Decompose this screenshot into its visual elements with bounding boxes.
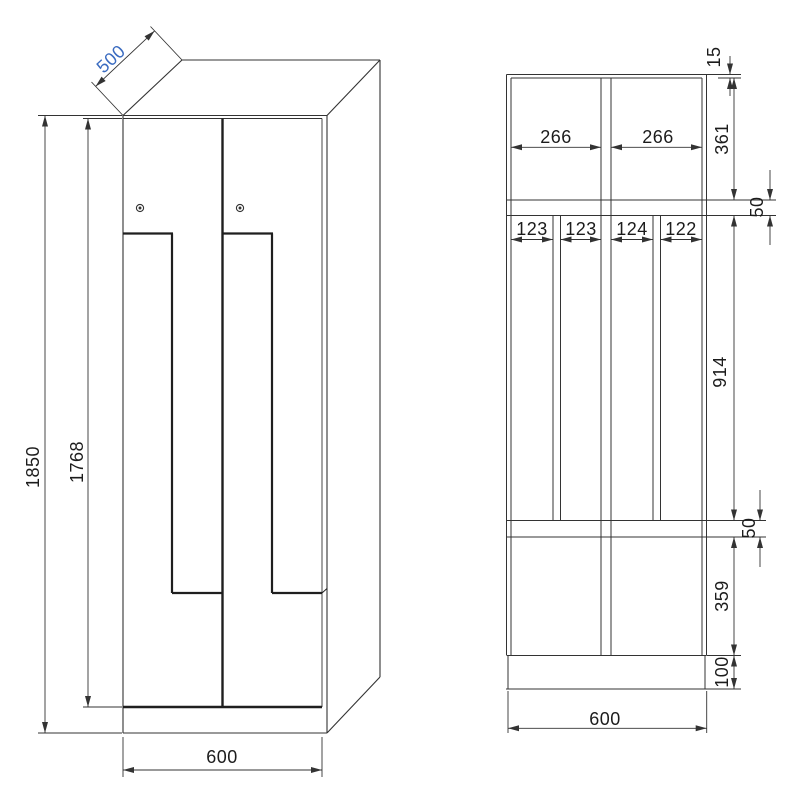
mid-partition-right	[653, 216, 661, 521]
dim-label-600-right: 600	[589, 710, 621, 728]
cabinet-side-face	[327, 60, 380, 733]
dim-1850	[38, 116, 122, 734]
dim-label-15: 15	[705, 46, 723, 67]
dim-label-124: 124	[616, 220, 648, 238]
lock-right-icon	[236, 204, 243, 211]
plinth	[506, 656, 709, 690]
center-divider	[601, 78, 611, 656]
dim-label-50-lower: 50	[740, 517, 758, 538]
cabinet-outline	[123, 116, 327, 734]
mid-partition-left	[553, 216, 561, 521]
dim-label-266-right: 266	[642, 128, 674, 146]
z-door-right	[223, 234, 328, 594]
dim-label-361: 361	[713, 123, 731, 155]
z-door-left	[123, 234, 222, 594]
dim-label-1768: 1768	[68, 441, 86, 483]
perspective-view	[38, 27, 380, 778]
drawing-lines	[0, 0, 800, 800]
dim-label-266-left: 266	[540, 128, 572, 146]
dim-1768	[83, 119, 122, 708]
technical-drawing-canvas: 500 1850 1768 600 266 266 123 123 124 12…	[0, 0, 800, 800]
dim-label-50-upper: 50	[748, 196, 766, 217]
dim-label-122: 122	[665, 220, 697, 238]
cabinet-top-face	[123, 60, 380, 116]
z-doors	[123, 119, 327, 708]
dim-label-600-left: 600	[206, 748, 238, 766]
front-section-view	[506, 56, 776, 733]
section-outline	[507, 75, 707, 656]
dim-label-123-b: 123	[565, 220, 597, 238]
lock-left-icon	[136, 204, 143, 211]
dim-label-914: 914	[711, 356, 729, 388]
dim-label-359: 359	[713, 580, 731, 612]
lower-shelf	[507, 521, 706, 538]
dim-label-100: 100	[713, 656, 731, 688]
dim-label-1850: 1850	[24, 446, 42, 488]
upper-shelf	[507, 200, 706, 216]
dim-label-123-a: 123	[516, 220, 548, 238]
